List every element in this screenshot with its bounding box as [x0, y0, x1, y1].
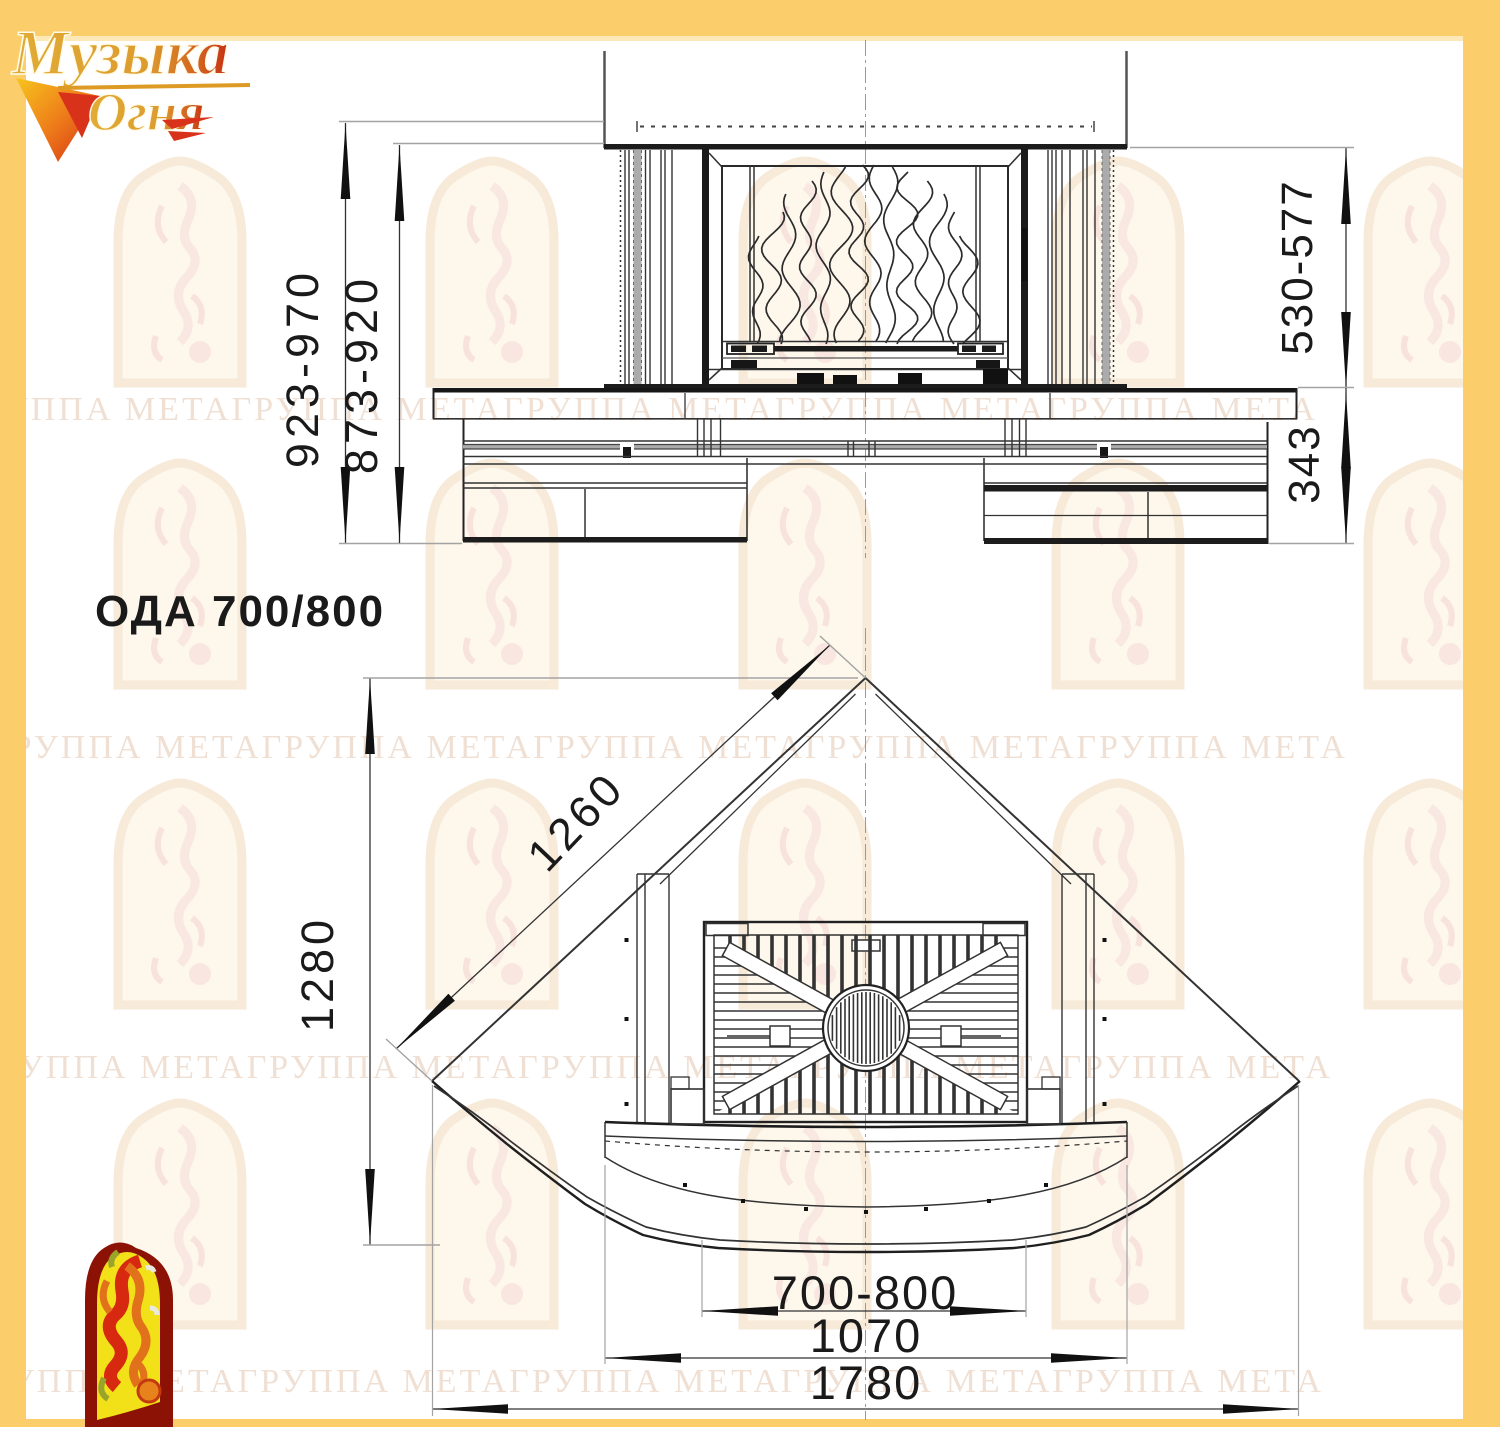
svg-text:ОДА 700/800: ОДА 700/800	[95, 587, 385, 636]
svg-text:530-577: 530-577	[1273, 179, 1322, 354]
svg-text:ГРУППА МЕТАГРУППА МЕТАГРУППА М: ГРУППА МЕТАГРУППА МЕТАГРУППА МЕТАГРУППА …	[0, 1049, 1333, 1086]
svg-text:1280: 1280	[292, 916, 343, 1032]
svg-text:ГРУППА МЕТАГРУППА МЕТАГРУППА М: ГРУППА МЕТАГРУППА МЕТАГРУППА МЕТАГРУППА …	[0, 391, 1318, 428]
svg-text:343: 343	[1280, 424, 1329, 503]
svg-text:1070: 1070	[810, 1309, 923, 1362]
svg-text:873-920: 873-920	[336, 274, 387, 474]
svg-text:1780: 1780	[810, 1356, 923, 1409]
svg-text:ГРУППА МЕТАГРУППА МЕТАГРУППА М: ГРУППА МЕТАГРУППА МЕТАГРУППА МЕТАГРУППА …	[0, 1363, 1324, 1400]
svg-text:ГРУППА МЕТАГРУППА МЕТАГРУППА М: ГРУППА МЕТАГРУППА МЕТАГРУППА МЕТАГРУППА …	[0, 729, 1348, 766]
svg-text:923-970: 923-970	[277, 268, 328, 468]
svg-text:Музыка: Музыка	[11, 17, 229, 88]
